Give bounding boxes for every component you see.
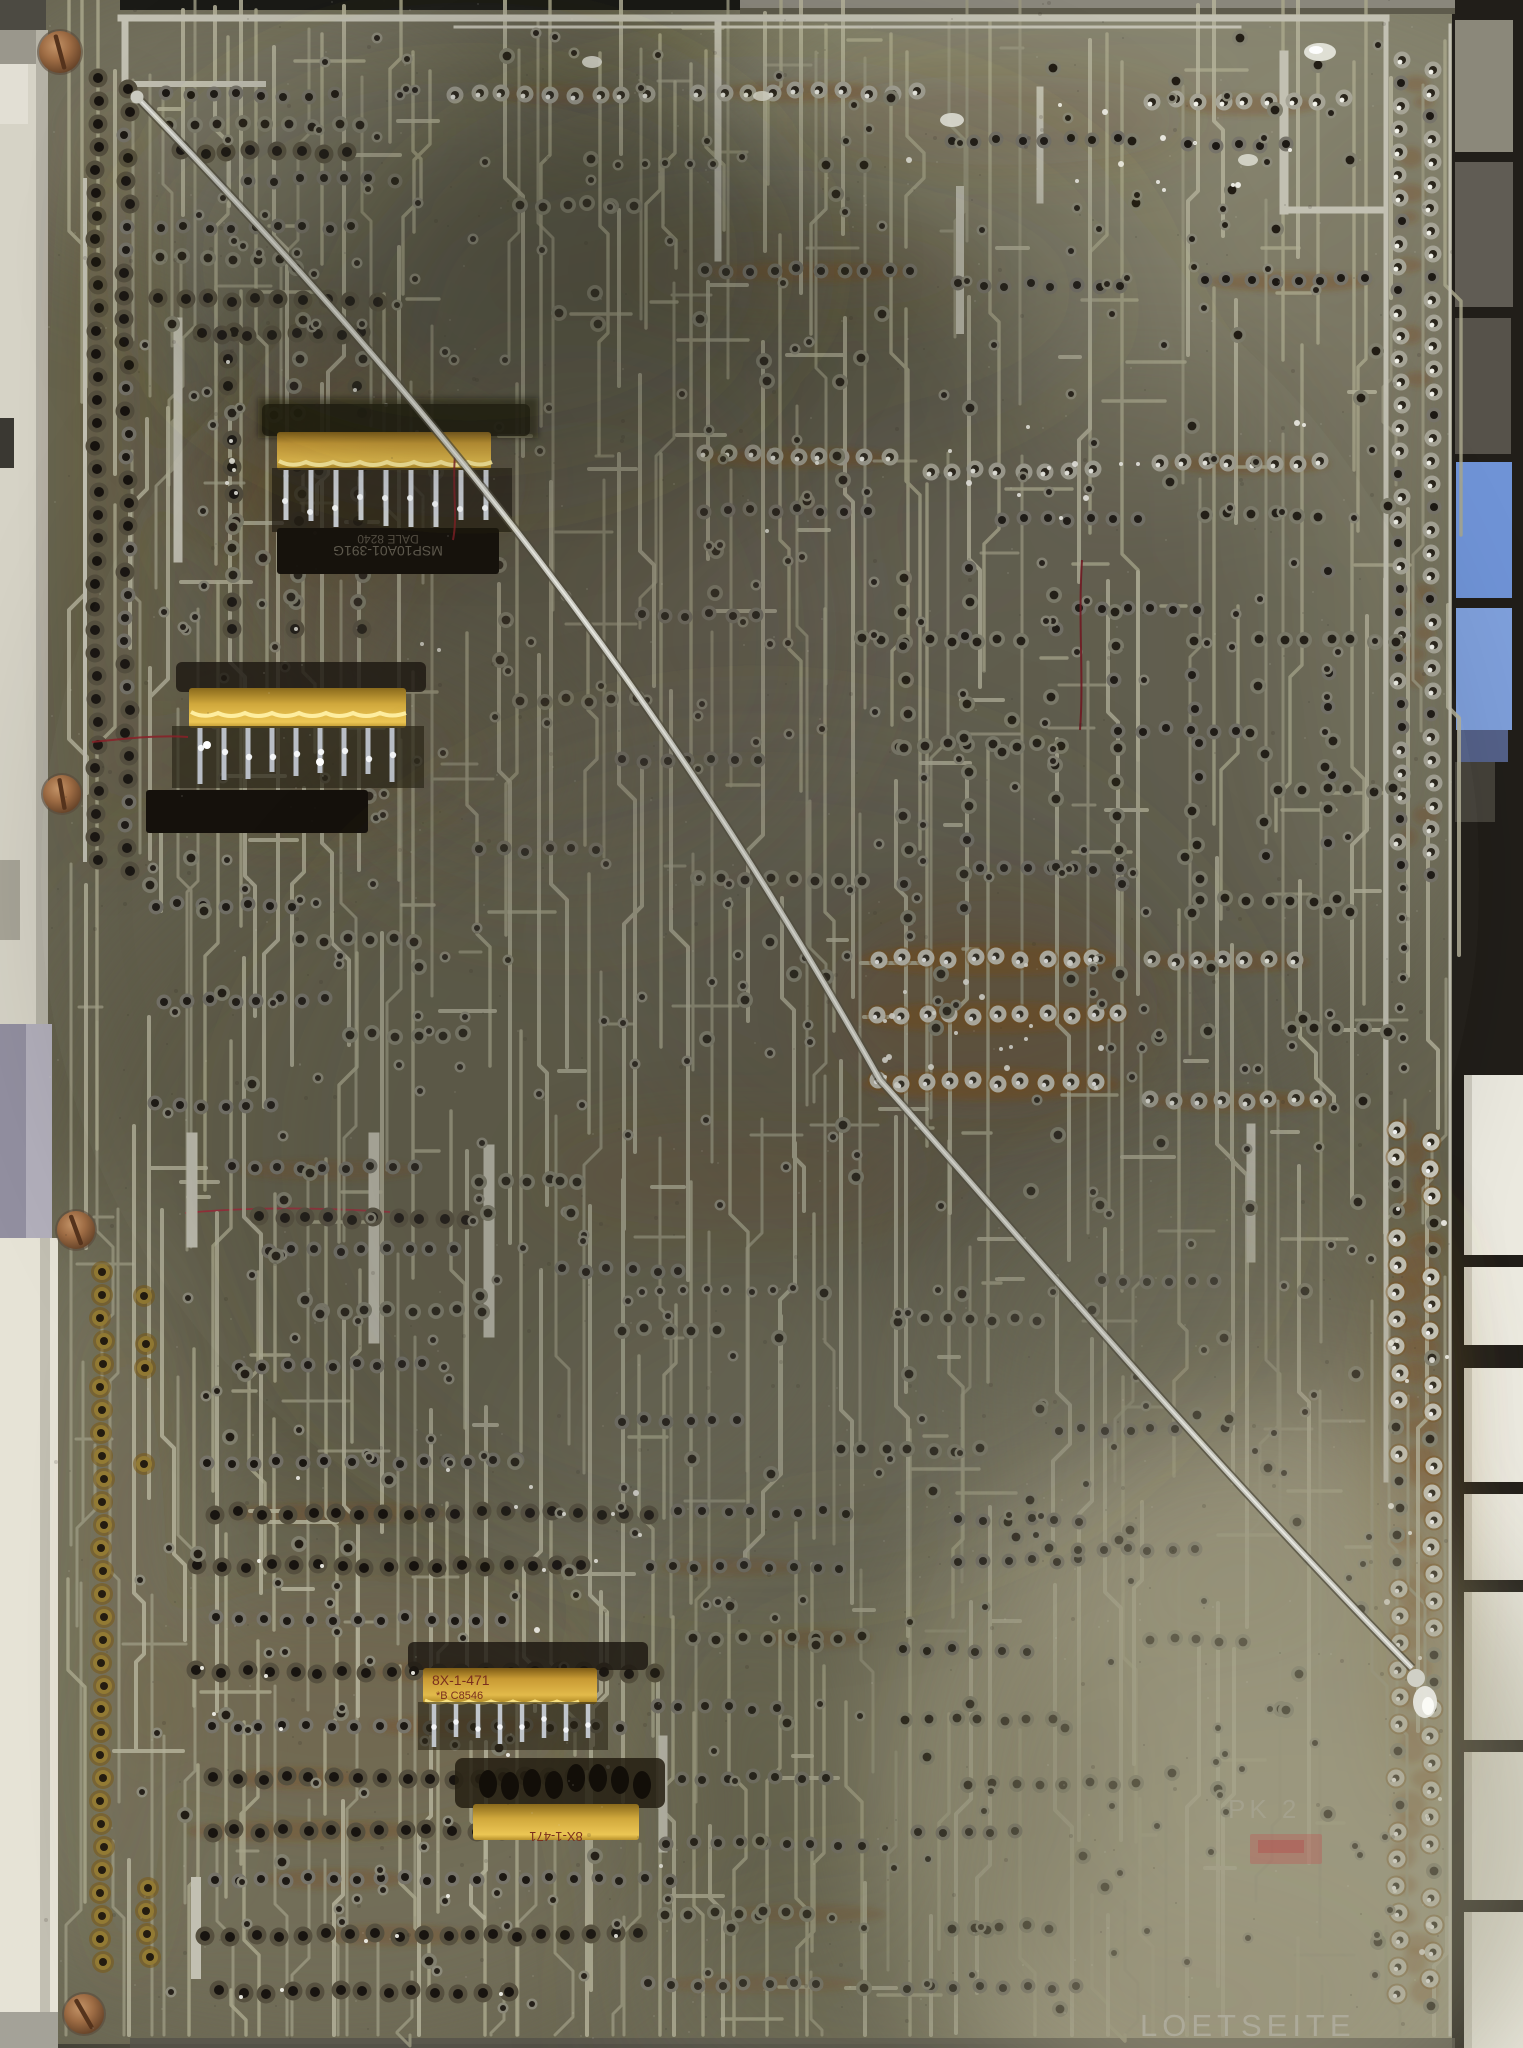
svg-text:LOETSEITE: LOETSEITE	[1140, 2008, 1356, 2043]
svg-text:8X-1-471: 8X-1-471	[529, 1829, 582, 1844]
svg-text:PK 2: PK 2	[1228, 1794, 1300, 1824]
svg-text:8X-1-471: 8X-1-471	[432, 1672, 490, 1688]
svg-text:DALE 8240: DALE 8240	[357, 532, 419, 546]
svg-text:*B C8546: *B C8546	[436, 1690, 483, 1702]
